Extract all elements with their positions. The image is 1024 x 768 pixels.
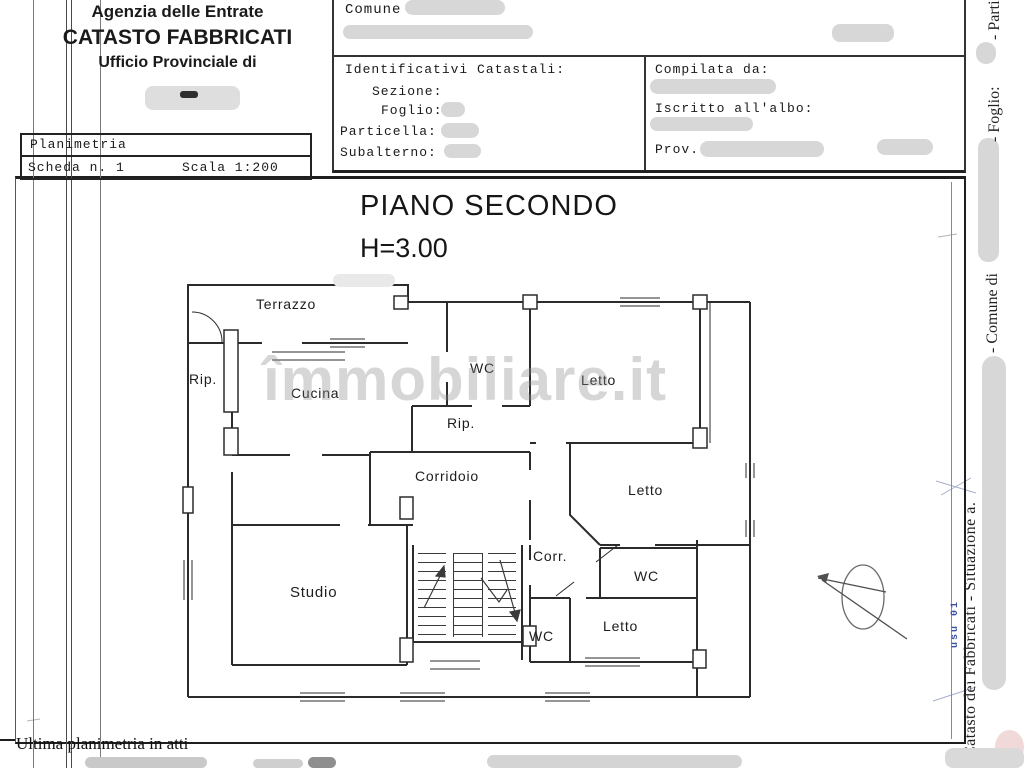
redaction-blob xyxy=(405,0,505,15)
redaction-blob xyxy=(85,757,207,768)
room-label-rip-mid: Rip. xyxy=(447,415,475,431)
room-label-corr: Corr. xyxy=(533,548,567,564)
room-label-wc-top: WC xyxy=(470,360,495,376)
redaction-blob xyxy=(978,138,999,262)
floor-height-label: H=3.00 xyxy=(360,233,448,264)
redaction-blob xyxy=(650,117,753,131)
redacted-text-fragment xyxy=(180,91,198,98)
side-strip-comune: - Comune di xyxy=(984,273,1002,353)
scheda-label: Scheda n. 1 xyxy=(28,157,125,178)
room-label-letto-bottom: Letto xyxy=(603,618,638,634)
particella-label: Particella: xyxy=(340,124,437,139)
room-label-letto-mid: Letto xyxy=(628,482,663,498)
redaction-blob xyxy=(145,86,240,110)
redaction-blob xyxy=(343,25,533,39)
redaction-blob xyxy=(308,757,336,768)
foglio-label: Foglio: xyxy=(381,103,443,118)
identificativi-title: Identificativi Catastali: xyxy=(345,62,565,77)
scala-label: Scala 1:200 xyxy=(182,157,279,178)
room-label-wc-bottom: WC xyxy=(529,628,554,644)
room-label-cucina: Cucina xyxy=(291,385,339,401)
planimetria-row2: Scheda n. 1 Scala 1:200 xyxy=(22,157,310,178)
prov-label: Prov. xyxy=(655,142,699,157)
floor-title: PIANO SECONDO xyxy=(360,190,618,223)
sezione-label: Sezione: xyxy=(372,84,442,99)
catasto-title: CATASTO FABBRICATI xyxy=(35,26,320,50)
redaction-blob xyxy=(877,139,933,155)
side-strip-catasto: Catasto dei Fabbricati - Situazione a. xyxy=(962,502,980,757)
side-strip-parti: - Parti xyxy=(986,0,1004,40)
footer-note: Ultima planimetria in atti xyxy=(16,734,188,754)
redaction-blob xyxy=(487,755,742,768)
redaction-blob xyxy=(441,123,479,138)
redaction-blob xyxy=(441,102,465,117)
plan-frame xyxy=(15,176,966,744)
planimetria-box: Planimetria Scheda n. 1 Scala 1:200 xyxy=(20,133,312,180)
form-divider-h xyxy=(334,55,964,57)
redaction-blob xyxy=(253,759,303,768)
compilata-label: Compilata da: xyxy=(655,62,769,77)
frame-inner-line xyxy=(951,182,952,739)
redaction-blob xyxy=(945,748,1024,768)
margin-line xyxy=(33,0,34,768)
planimetria-title: Planimetria xyxy=(22,135,310,157)
room-label-terrazzo: Terrazzo xyxy=(256,296,316,312)
margin-line xyxy=(100,0,101,768)
frame-bottom-extension xyxy=(0,739,15,741)
room-label-wc-right: WC xyxy=(634,568,659,584)
redaction-blob xyxy=(333,274,395,287)
ufficio-line: Ufficio Provinciale di xyxy=(35,54,320,72)
agency-header: Agenzia delle Entrate CATASTO FABBRICATI… xyxy=(35,2,320,72)
redaction-blob xyxy=(976,42,996,64)
side-strip-foglio: - Foglio: xyxy=(986,86,1004,142)
redaction-blob xyxy=(700,141,824,157)
side-strip-blue-note: usu 01 xyxy=(950,600,961,648)
room-label-corridoio: Corridoio xyxy=(415,468,479,484)
room-label-studio: Studio xyxy=(290,584,337,601)
margin-line xyxy=(66,0,67,768)
form-divider-v xyxy=(644,55,646,170)
redaction-blob xyxy=(982,356,1006,690)
redaction-blob xyxy=(832,24,894,42)
agency-name: Agenzia delle Entrate xyxy=(35,2,320,22)
room-label-rip: Rip. xyxy=(189,371,217,387)
iscritto-label: Iscritto all'albo: xyxy=(655,101,813,116)
subalterno-label: Subalterno: xyxy=(340,145,437,160)
room-label-letto-tr: Letto xyxy=(581,372,616,388)
cadastral-planimetria-page: Agenzia delle Entrate CATASTO FABBRICATI… xyxy=(0,0,1024,768)
redaction-blob xyxy=(650,79,776,94)
margin-line xyxy=(71,0,72,768)
redaction-blob xyxy=(444,144,481,158)
